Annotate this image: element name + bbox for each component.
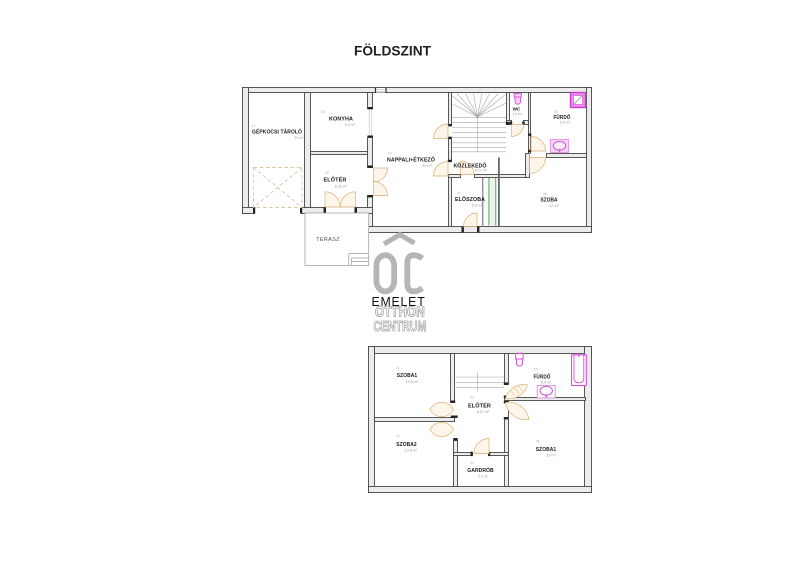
svg-text:8,35 m²: 8,35 m² xyxy=(335,185,348,189)
svg-text:9,0 m²: 9,0 m² xyxy=(345,123,356,127)
svg-text:08: 08 xyxy=(543,192,547,196)
svg-text:02: 02 xyxy=(396,435,400,439)
svg-text:01: 01 xyxy=(396,366,400,370)
svg-text:FÖLDSZINT: FÖLDSZINT xyxy=(354,43,432,58)
svg-text:04: 04 xyxy=(388,152,392,156)
svg-text:8,07 m²: 8,07 m² xyxy=(477,410,490,414)
svg-text:02: 02 xyxy=(321,110,325,114)
svg-text:NAPPALI+ÉTKEZŐ: NAPPALI+ÉTKEZŐ xyxy=(387,156,435,164)
svg-text:30 m²: 30 m² xyxy=(294,136,304,140)
svg-text:GÉPKOCSI TÁROLÓ: GÉPKOCSI TÁROLÓ xyxy=(252,128,302,136)
svg-text:ELŐTÉR: ELŐTÉR xyxy=(468,402,491,410)
svg-text:06: 06 xyxy=(536,440,540,444)
svg-text:SZOBA2: SZOBA2 xyxy=(396,442,417,448)
svg-text:ELŐTÉR: ELŐTÉR xyxy=(324,176,347,184)
svg-text:FÜRDŐ: FÜRDŐ xyxy=(534,374,551,381)
svg-text:GARDRÓB: GARDRÓB xyxy=(467,466,494,474)
svg-text:3,0 m²: 3,0 m² xyxy=(478,475,489,479)
svg-text:SZOBA1: SZOBA1 xyxy=(536,447,557,453)
svg-text:06: 06 xyxy=(554,110,558,114)
svg-text:30 m²: 30 m² xyxy=(422,164,432,168)
svg-text:16 m²: 16 m² xyxy=(546,454,556,458)
svg-text:13,8 m²: 13,8 m² xyxy=(405,449,418,453)
svg-text:1,5 m²: 1,5 m² xyxy=(512,112,522,116)
svg-text:SZOBA1: SZOBA1 xyxy=(397,373,418,379)
svg-text:TERASZ: TERASZ xyxy=(316,237,340,243)
svg-text:WC: WC xyxy=(513,106,521,111)
svg-text:13,8 m²: 13,8 m² xyxy=(406,380,419,384)
svg-text:4,71 m²: 4,71 m² xyxy=(475,169,488,173)
svg-text:04: 04 xyxy=(470,461,474,465)
svg-text:12 m²: 12 m² xyxy=(549,204,559,208)
svg-text:ELŐSZOBA: ELŐSZOBA xyxy=(455,196,485,203)
svg-text:KONYHA: KONYHA xyxy=(329,117,353,123)
svg-text:07: 07 xyxy=(457,192,461,196)
svg-text:5,0 m²: 5,0 m² xyxy=(560,121,571,125)
svg-text:CENTRUM: CENTRUM xyxy=(373,319,426,335)
svg-text:03: 03 xyxy=(325,171,329,175)
svg-text:01: 01 xyxy=(252,124,256,128)
svg-text:SZOBA: SZOBA xyxy=(541,198,558,204)
svg-text:5,8 m²: 5,8 m² xyxy=(472,204,483,208)
svg-text:OTTHON: OTTHON xyxy=(375,303,425,319)
svg-text:05: 05 xyxy=(534,368,538,372)
svg-text:03: 03 xyxy=(470,396,474,400)
svg-text:5,4 m²: 5,4 m² xyxy=(541,381,552,385)
